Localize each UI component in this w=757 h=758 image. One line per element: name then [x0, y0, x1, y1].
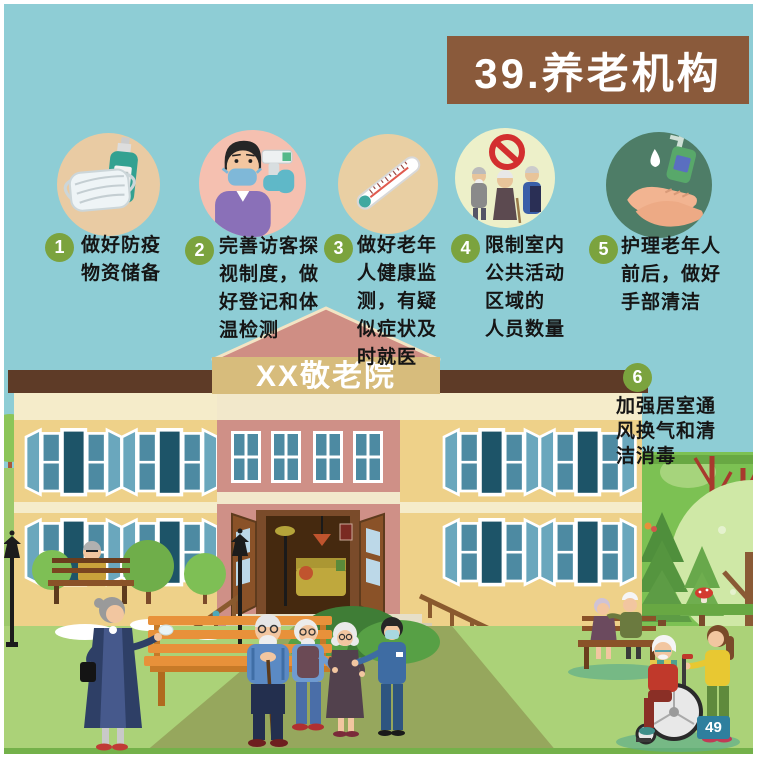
face-mask-icon — [65, 169, 134, 212]
mask-and-sanitizer-icon — [57, 133, 160, 236]
droplet-icon — [650, 149, 660, 167]
right-wing — [394, 370, 648, 632]
tip1-text: 做好防疫 物资储备 — [81, 232, 203, 288]
limit-indoor-gathering-icon — [455, 128, 555, 228]
tip1-icon-circle — [57, 133, 160, 236]
elderly-group-icon — [471, 166, 541, 223]
sanitizer-pump-icon — [660, 133, 700, 184]
thermometer-icon — [338, 134, 438, 234]
tip1-number: 1 — [54, 237, 64, 258]
title-banner: 39.养老机构 — [447, 36, 749, 104]
tip4-text: 限制室内 公共活动 区域的 人员数量 — [485, 232, 601, 344]
page-title: 39.养老机构 — [474, 40, 721, 101]
tip6-number-badge: 6 — [623, 363, 652, 392]
page-number-badge: 49 — [697, 716, 730, 739]
tip2-icon-circle — [199, 130, 306, 237]
thermometer-gun-icon — [262, 150, 294, 193]
visitor-temperature-check-icon — [199, 130, 306, 237]
building: XX敬老院 — [8, 308, 648, 643]
left-wing — [8, 370, 226, 632]
hands-icon — [627, 187, 703, 227]
tip2-text: 完善访客探 视制度，做 好登记和体 温检测 — [219, 233, 345, 345]
tip5-icon-circle — [606, 132, 712, 238]
tip6-number: 6 — [632, 367, 642, 388]
infographic-page: 39.养老机构 — [0, 0, 757, 758]
no-entry-icon — [492, 137, 522, 167]
hand-hygiene-icon — [606, 132, 712, 238]
tip3-icon-circle — [338, 134, 438, 234]
gloved-hand-icon — [263, 170, 294, 194]
tip1-number-badge: 1 — [45, 233, 74, 262]
tip6-text: 加强居室通 风换气和清 洁消毒 — [616, 394, 749, 469]
entrance-door — [232, 510, 384, 618]
page-number: 49 — [705, 719, 722, 736]
tip4-icon-circle — [455, 128, 555, 228]
tip3-text: 做好老年 人健康监 测，有疑 似症状及 时就医 — [357, 232, 473, 372]
tip5-text: 护理老年人 前后，做好 手部清洁 — [621, 233, 747, 317]
